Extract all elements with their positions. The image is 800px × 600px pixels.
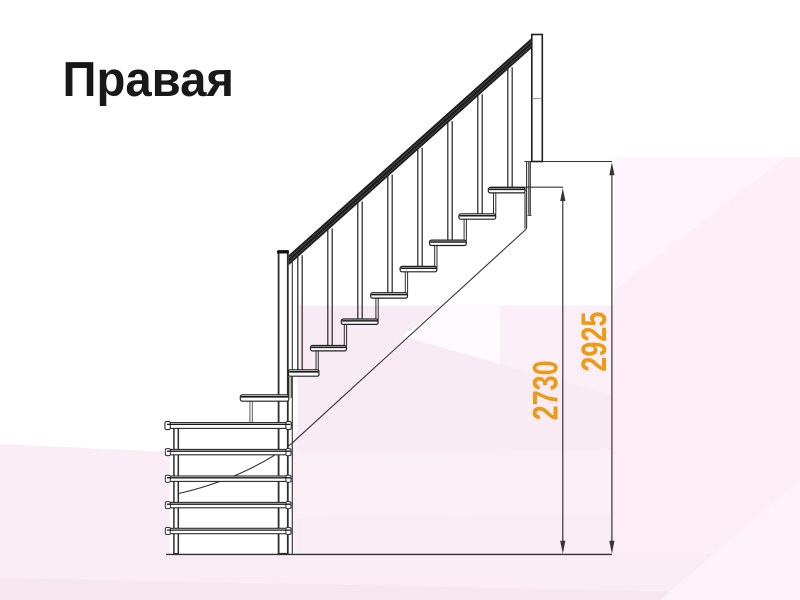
svg-text:2925: 2925 (575, 312, 614, 372)
svg-text:Правая: Правая (63, 53, 235, 107)
svg-text:2730: 2730 (527, 360, 566, 420)
